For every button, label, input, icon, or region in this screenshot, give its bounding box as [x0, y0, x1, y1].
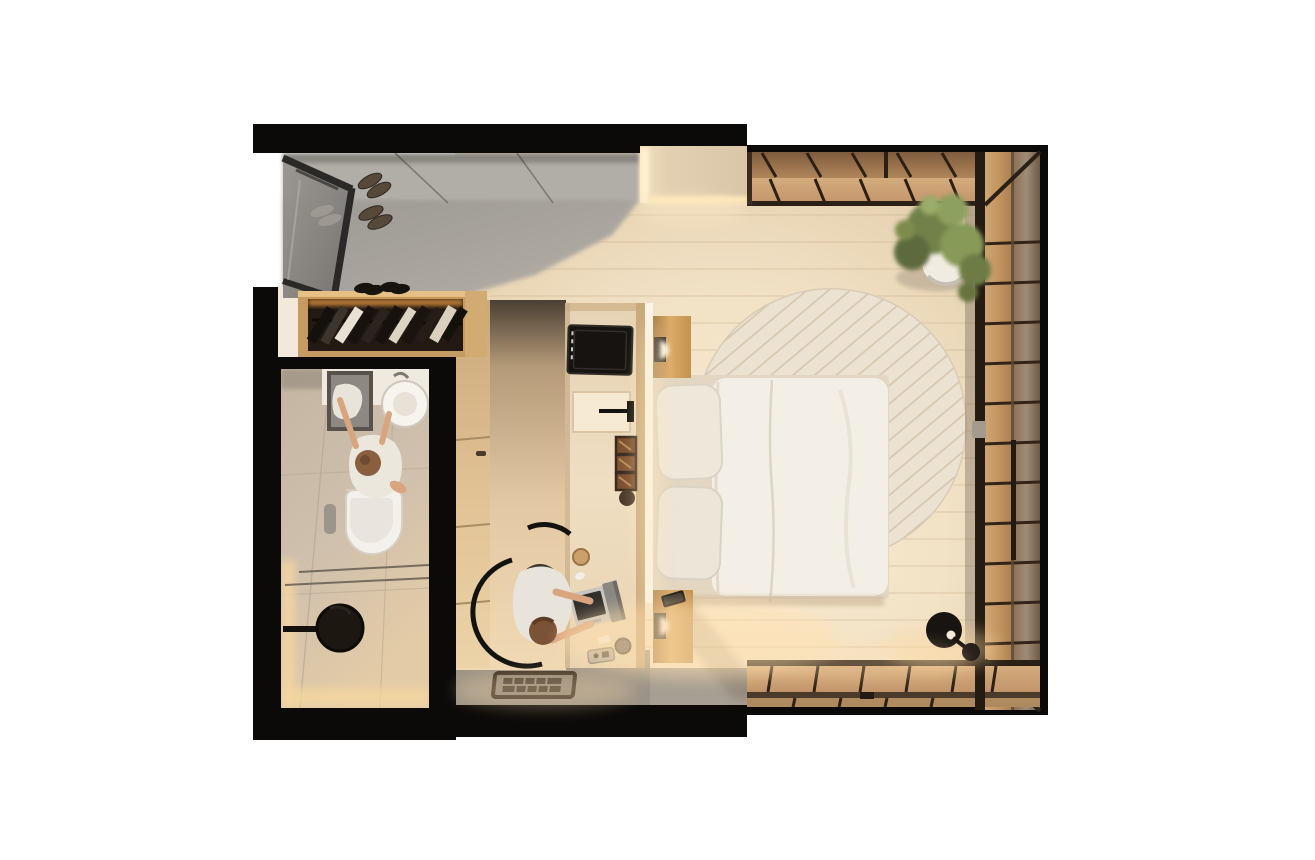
wardrobe — [298, 281, 487, 357]
wall-bathroom-top — [278, 355, 429, 369]
wall-left — [253, 287, 281, 740]
apartment-top-view — [0, 0, 1315, 860]
deck-joint — [884, 152, 888, 178]
bed — [652, 375, 889, 606]
knob — [619, 490, 635, 506]
toilet — [346, 490, 402, 554]
wardrobe-glow — [308, 299, 463, 306]
deck-right-band — [985, 152, 1040, 711]
wall-bottom-center — [455, 705, 747, 737]
render-canvas — [0, 0, 1315, 860]
bathroom-wall-glow-left — [281, 560, 295, 708]
duvet — [712, 378, 888, 596]
cove-light-vertical — [640, 148, 649, 203]
niche-with-handle — [573, 392, 634, 432]
deck-rail-segment — [1011, 440, 1016, 560]
flush-plate — [324, 504, 336, 534]
balcony-border-right — [1040, 145, 1048, 715]
bedroom-wall-band — [640, 146, 748, 204]
wardrobe-right-panel — [465, 291, 487, 357]
bathroom-wall-glow-bottom — [285, 688, 429, 706]
balcony-border-top — [747, 145, 1048, 153]
wall-bottom-left — [253, 708, 456, 740]
tv — [567, 325, 632, 375]
cabinet-handle — [476, 451, 486, 456]
door-handle — [972, 421, 986, 438]
black-handle-plate — [627, 401, 634, 422]
wall-bathroom-right — [429, 355, 456, 710]
display-cubbies — [616, 437, 636, 490]
mug — [573, 549, 589, 565]
